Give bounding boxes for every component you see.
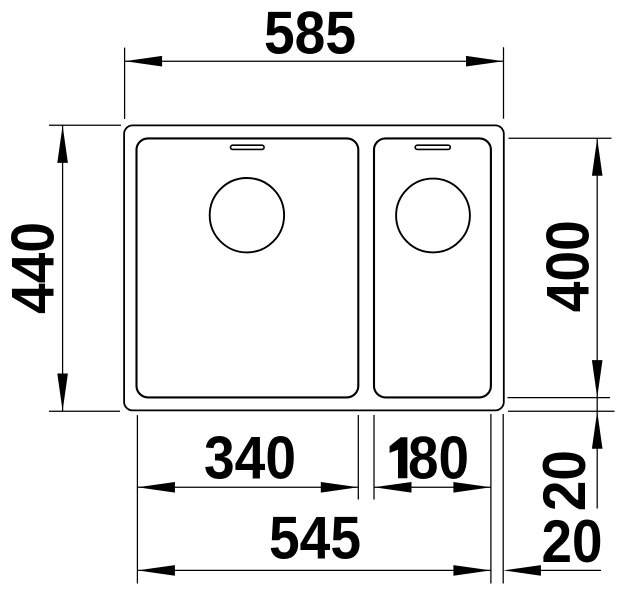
svg-text:80: 80 — [408, 424, 469, 491]
svg-text:440: 440 — [0, 222, 67, 314]
svg-text:400: 400 — [535, 220, 602, 312]
svg-text:585: 585 — [264, 0, 356, 67]
svg-text:545: 545 — [269, 505, 361, 572]
svg-text:20: 20 — [531, 450, 598, 511]
svg-text:340: 340 — [204, 424, 296, 491]
svg-text:20: 20 — [542, 508, 603, 575]
